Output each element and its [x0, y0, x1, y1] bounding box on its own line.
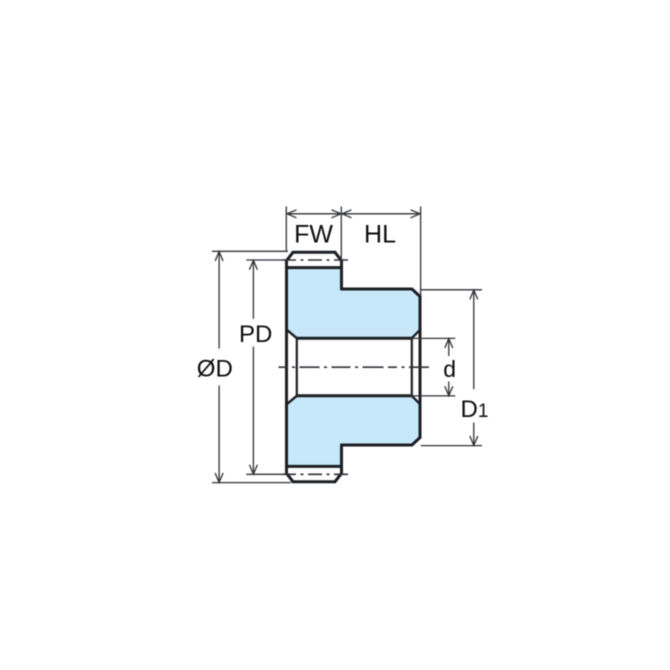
svg-text:d: d	[443, 356, 456, 382]
svg-text:HL: HL	[364, 220, 396, 248]
svg-text:PD: PD	[239, 321, 272, 348]
svg-text:FW: FW	[294, 220, 333, 248]
svg-text:ØD: ØD	[197, 356, 233, 383]
svg-text:D1: D1	[461, 396, 489, 423]
